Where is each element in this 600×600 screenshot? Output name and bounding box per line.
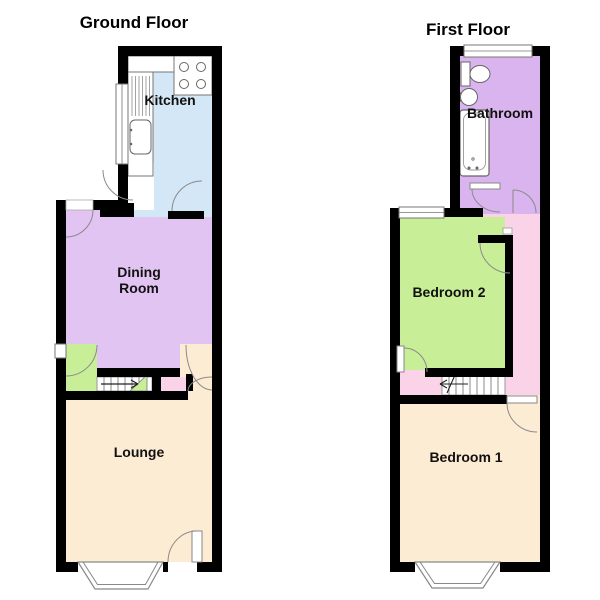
wall-segment: [118, 203, 134, 217]
floorplan-canvas: Ground Floor Kitchen Dining Room Lounge: [0, 0, 600, 600]
dining-room-label-line2: Room: [119, 280, 159, 296]
kitchen-counter: [128, 56, 175, 72]
hob-burner-icon: [197, 80, 206, 89]
first-floor-plan: First Floor Bathroom Bedroom 2 Bedroom 1: [390, 20, 550, 588]
bathroom-door-leaf: [470, 183, 500, 189]
front-door-opening: [168, 562, 197, 572]
hall-door-swing-area: [66, 344, 97, 391]
tap-icon: [468, 167, 471, 170]
floorplan-page: Ground Floor Kitchen Dining Room Lounge: [0, 0, 600, 600]
wall-segment: [66, 391, 188, 400]
wall-segment: [56, 200, 66, 572]
bedroom1-door-leaf: [507, 396, 537, 403]
wall-segment: [197, 562, 222, 572]
wall-segment: [450, 56, 460, 211]
wall-segment: [100, 208, 118, 217]
hall-window: [55, 344, 66, 358]
sink-icon: [130, 120, 151, 154]
bedroom2-entry-opening: [503, 228, 512, 234]
wall-segment: [390, 562, 415, 572]
first-floor-title: First Floor: [426, 20, 510, 39]
hob-icon: [174, 56, 212, 95]
wall-segment: [505, 235, 513, 370]
toilet-icon: [470, 66, 490, 83]
hob-burner-icon: [197, 63, 206, 72]
tap-icon: [476, 167, 479, 170]
wall-segment: [152, 377, 161, 391]
toilet-cistern-icon: [461, 62, 470, 86]
bedroom1-label: Bedroom 1: [429, 449, 502, 465]
wall-segment: [163, 562, 168, 572]
ground-floor-plan: Ground Floor Kitchen Dining Room Lounge: [55, 13, 222, 589]
front-door-leaf: [192, 531, 202, 562]
wall-segment: [390, 395, 507, 404]
rear-door-opening: [66, 200, 93, 210]
bathroom-label: Bathroom: [467, 105, 533, 121]
basin-icon: [461, 89, 478, 106]
tap-icon: [130, 143, 133, 146]
kitchen-label: Kitchen: [144, 92, 195, 108]
wall-segment: [186, 374, 193, 391]
ground-floor-stairs: [97, 375, 152, 391]
hall-floor: [161, 377, 186, 391]
wall-segment: [56, 562, 78, 572]
wall-segment: [500, 562, 550, 572]
lounge-floor: [66, 391, 212, 562]
wall-segment: [540, 46, 550, 572]
dining-room-label-line1: Dining: [117, 264, 161, 280]
wall-segment: [443, 208, 483, 217]
landing-floor: [513, 214, 540, 395]
hob-burner-icon: [180, 80, 189, 89]
bedroom2-label: Bedroom 2: [412, 284, 485, 300]
wall-segment: [168, 211, 204, 219]
tap-icon: [130, 129, 133, 132]
wall-segment: [118, 46, 222, 56]
lounge-label: Lounge: [114, 444, 165, 460]
wall-segment: [212, 46, 222, 572]
ground-floor-title: Ground Floor: [80, 13, 189, 32]
wall-segment: [390, 208, 400, 572]
bedroom1-bay-window: [415, 562, 500, 588]
wall-segment: [425, 368, 513, 377]
wall-segment: [97, 368, 180, 377]
hob-burner-icon: [180, 63, 189, 72]
bedroom2-door-leaf: [397, 346, 404, 372]
